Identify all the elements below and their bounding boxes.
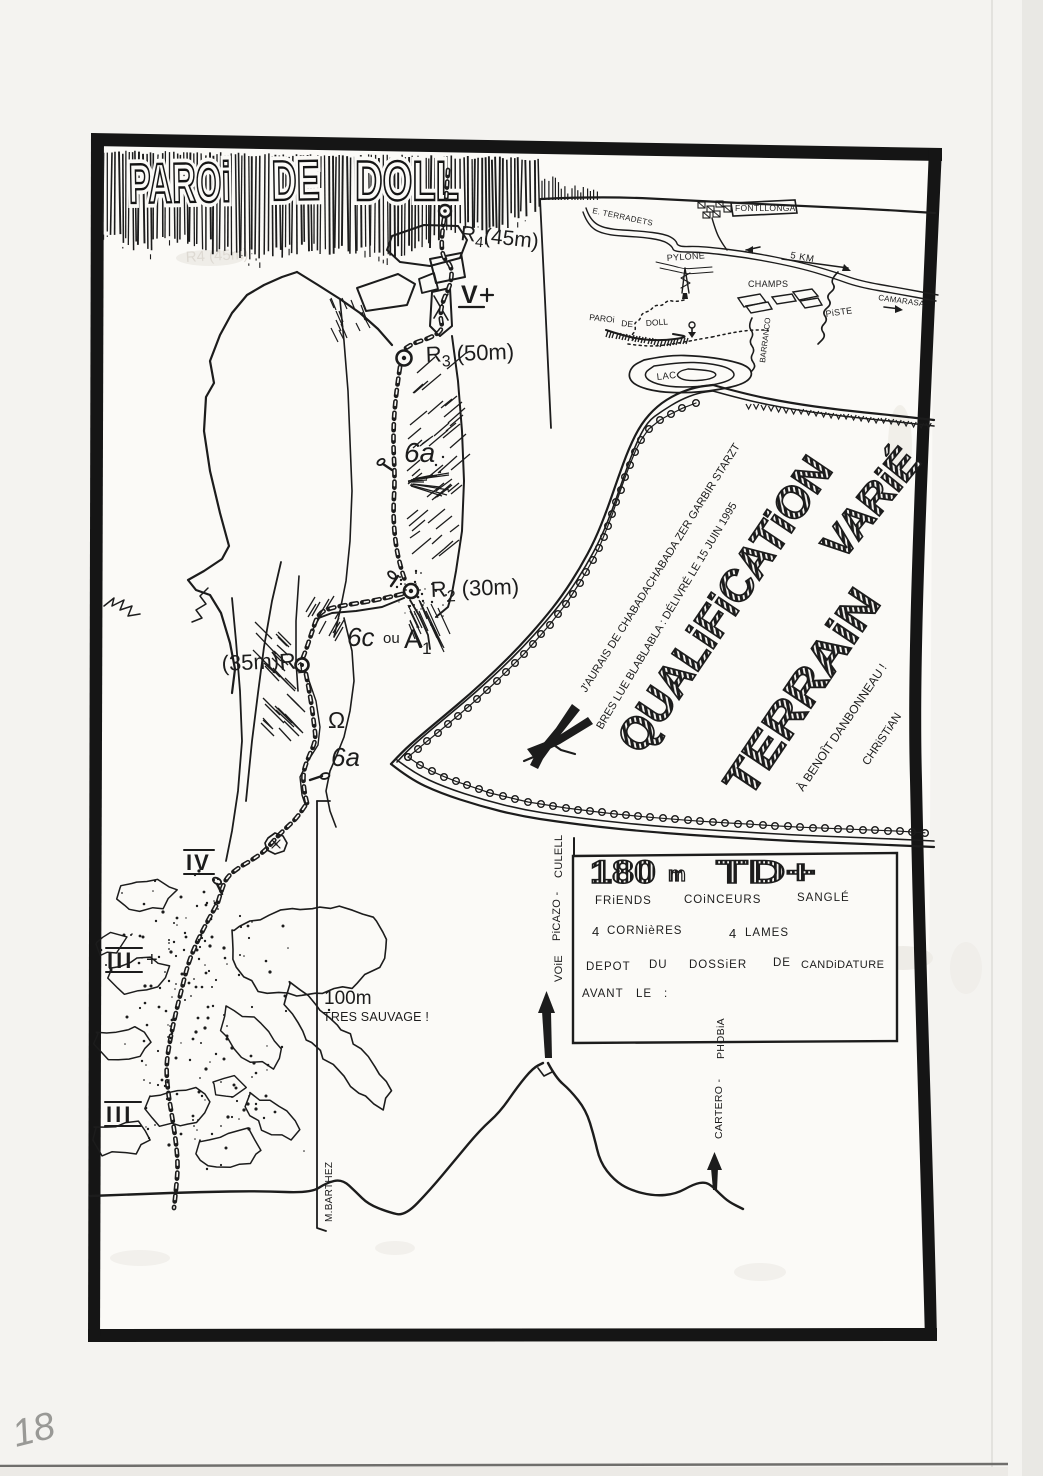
svg-text:180: 180 <box>590 854 656 890</box>
svg-text:DU: DU <box>649 959 668 971</box>
svg-text:LAC: LAC <box>656 370 677 383</box>
svg-text::: : <box>664 988 667 1000</box>
svg-text:6c: 6c <box>347 622 374 652</box>
svg-text:4: 4 <box>729 926 736 941</box>
svg-text:TRES SAUVAGE !: TRES SAUVAGE ! <box>323 1010 429 1024</box>
svg-text:4: 4 <box>592 924 599 939</box>
svg-text:V: V <box>461 281 478 309</box>
svg-text:AVANT: AVANT <box>582 988 624 1000</box>
svg-text:PAROi: PAROi <box>128 150 231 215</box>
svg-text:PiCAZO -: PiCAZO - <box>551 892 563 941</box>
svg-text:CHAMPS: CHAMPS <box>748 279 788 289</box>
svg-text:PHOBiA: PHOBiA <box>715 1018 727 1059</box>
svg-text:DE: DE <box>773 957 791 969</box>
svg-text:CANDiDATURE: CANDiDATURE <box>801 959 885 971</box>
svg-text:SANGLÉ: SANGLÉ <box>797 891 850 904</box>
svg-text:LAMES: LAMES <box>745 927 789 939</box>
svg-text:TD+: TD+ <box>716 854 816 890</box>
svg-text:Ω: Ω <box>328 707 345 733</box>
svg-text:CARTERO -: CARTERO - <box>713 1079 725 1139</box>
svg-text:DE: DE <box>271 148 320 212</box>
svg-text:FONTLLONGA: FONTLLONGA <box>735 203 796 213</box>
svg-text:CULELL: CULELL <box>553 835 565 878</box>
svg-text:III: III <box>106 1102 133 1127</box>
svg-text:CORNièRES: CORNièRES <box>607 925 682 937</box>
svg-text:DEPOT: DEPOT <box>586 961 631 973</box>
svg-text:M.BARTHEZ: M.BARTHEZ <box>324 1162 335 1222</box>
svg-text:COiNCEURS: COiNCEURS <box>684 894 761 906</box>
svg-text:+: + <box>146 949 158 971</box>
svg-text:VOiE: VOiE <box>553 955 565 982</box>
svg-text:m: m <box>668 864 686 886</box>
svg-text:DE: DE <box>621 318 634 329</box>
svg-text:100m: 100m <box>324 988 372 1009</box>
svg-text:DOLL: DOLL <box>355 149 459 212</box>
svg-text:6a: 6a <box>331 742 360 772</box>
svg-text:ou: ou <box>383 630 400 647</box>
svg-text:LE: LE <box>636 988 652 1000</box>
svg-text:DOLL: DOLL <box>645 316 668 328</box>
svg-text:DOSSiER: DOSSiER <box>689 959 747 971</box>
svg-text:FRiENDS: FRiENDS <box>595 895 652 907</box>
